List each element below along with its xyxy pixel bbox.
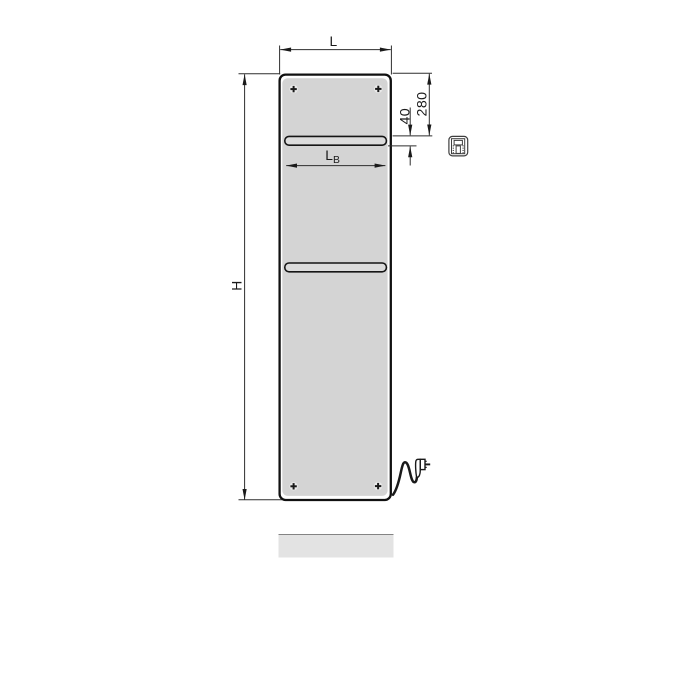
svg-text:280: 280 bbox=[415, 92, 431, 117]
svg-text:H: H bbox=[230, 281, 245, 291]
svg-text:40: 40 bbox=[398, 108, 414, 125]
svg-text:L: L bbox=[330, 34, 338, 49]
